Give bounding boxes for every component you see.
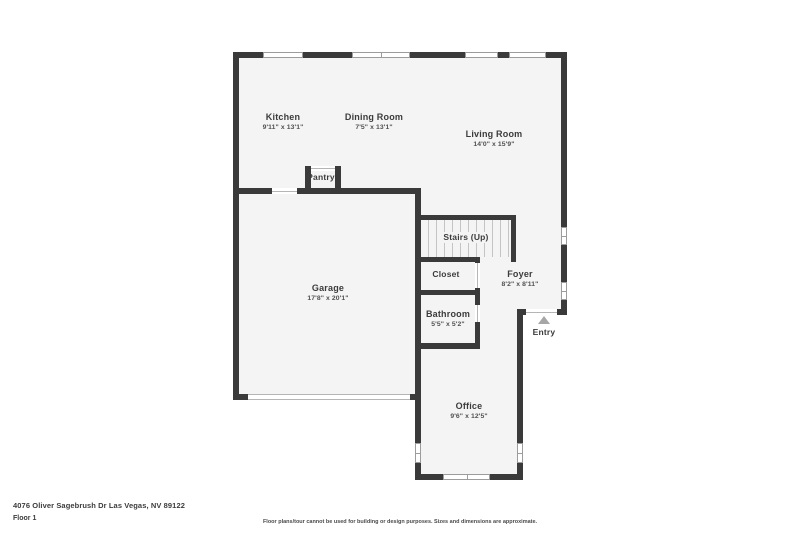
- room-name: Living Room: [466, 129, 523, 140]
- room-dims: 17'8" x 20'1": [307, 294, 348, 303]
- room-label-office: Office 9'6" x 12'5": [450, 401, 487, 421]
- room-name: Stairs (Up): [443, 232, 488, 243]
- room-name: Bathroom: [426, 309, 470, 320]
- room-name: Dining Room: [345, 112, 403, 123]
- window-living-right: [561, 227, 567, 245]
- room-name: Kitchen: [263, 112, 304, 123]
- window-foyer-right: [561, 282, 567, 300]
- window-living-top-1: [465, 52, 498, 58]
- room-name: Office: [450, 401, 487, 412]
- room-label-garage: Garage 17'8" x 20'1": [307, 283, 348, 303]
- room-name: Foyer: [502, 269, 539, 280]
- wall-stairs-bottom: [421, 257, 480, 262]
- wall-garage-bottom-left: [233, 394, 248, 400]
- wall-garage-left: [233, 188, 239, 400]
- room-name: Closet: [432, 269, 459, 280]
- door-closet: [475, 263, 480, 288]
- address-text: 4076 Oliver Sagebrush Dr Las Vegas, NV 8…: [13, 501, 185, 510]
- entry-direction-icon: [538, 316, 550, 324]
- room-dims: 14'0" x 15'9": [466, 140, 523, 149]
- wall-garage-top: [233, 188, 421, 194]
- wall-right-main: [561, 52, 567, 315]
- opening-stairs-entry: [480, 257, 511, 262]
- room-dims: 7'5" x 13'1": [345, 123, 403, 132]
- wall-bathroom-bottom: [415, 343, 480, 349]
- wall-stairs-right: [511, 215, 516, 262]
- room-label-closet: Closet: [432, 269, 459, 280]
- room-name: Pantry: [307, 172, 335, 183]
- room-label-bathroom: Bathroom 5'5" x 5'2": [426, 309, 470, 329]
- window-office-right: [517, 443, 523, 463]
- door-bathroom: [475, 305, 480, 322]
- window-office-left: [415, 443, 421, 463]
- wall-bathroom-right: [475, 295, 480, 349]
- window-living-top-2: [509, 52, 546, 58]
- door-kitchen-garage: [272, 188, 297, 194]
- wall-left-upper: [233, 52, 239, 193]
- window-dining-top: [352, 52, 410, 58]
- window-office-bottom: [443, 474, 490, 480]
- floor-label: Floor 1: [13, 515, 36, 522]
- garage-door: [248, 394, 410, 400]
- room-label-kitchen: Kitchen 9'11" x 13'1": [263, 112, 304, 132]
- door-pantry: [311, 166, 335, 171]
- room-label-stairs: Stairs (Up): [440, 232, 491, 243]
- window-kitchen-top: [263, 52, 303, 58]
- room-label-entry: Entry: [533, 327, 556, 338]
- floor-area-office: [415, 309, 523, 480]
- wall-closet-bottom: [415, 290, 480, 295]
- room-name: Garage: [307, 283, 348, 294]
- room-dims: 9'6" x 12'5": [450, 412, 487, 421]
- disclaimer-text: Floor plans/tour cannot be used for buil…: [263, 519, 537, 525]
- door-entry-front: [526, 309, 557, 315]
- room-label-living: Living Room 14'0" x 15'9": [466, 129, 523, 149]
- floor-plan: Kitchen 9'11" x 13'1" Dining Room 7'5" x…: [0, 0, 800, 533]
- room-dims: 8'2" x 8'11": [502, 280, 539, 289]
- room-label-foyer: Foyer 8'2" x 8'11": [502, 269, 539, 289]
- room-label-pantry: Pantry: [307, 172, 335, 183]
- room-name: Entry: [533, 327, 556, 338]
- room-label-dining: Dining Room 7'5" x 13'1": [345, 112, 403, 132]
- room-dims: 9'11" x 13'1": [263, 123, 304, 132]
- room-dims: 5'5" x 5'2": [426, 320, 470, 329]
